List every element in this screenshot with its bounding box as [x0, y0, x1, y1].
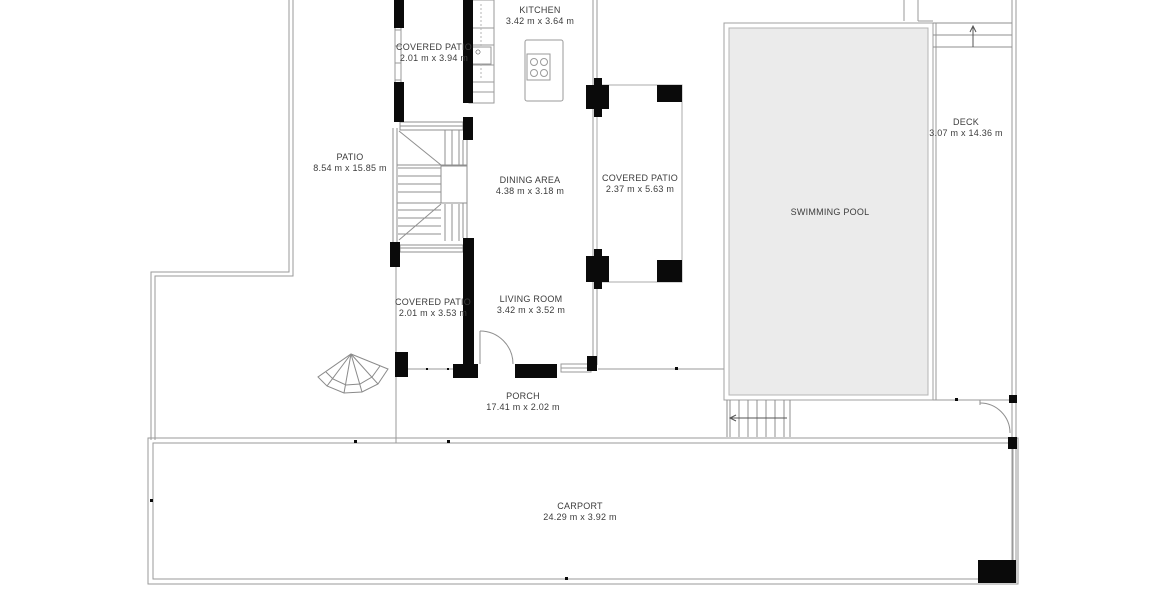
room-dims: 2.01 m x 3.94 m [396, 53, 472, 64]
room-label-deck: DECK 3.07 m x 14.36 m [929, 117, 1003, 139]
room-label-porch: PORCH 17.41 m x 2.02 m [486, 391, 560, 413]
room-label-covered-patio-top: COVERED PATIO 2.01 m x 3.94 m [396, 42, 472, 64]
room-name: COVERED PATIO [602, 173, 678, 184]
room-name: SWIMMING POOL [791, 207, 870, 218]
room-name: DECK [929, 117, 1003, 128]
patio-boundary [151, 0, 293, 440]
deck-steps-arrow [970, 26, 976, 47]
room-dims: 17.41 m x 2.02 m [486, 402, 560, 413]
staircase [393, 122, 467, 252]
room-label-swimming-pool: SWIMMING POOL [791, 207, 870, 218]
room-dims: 2.37 m x 5.63 m [602, 184, 678, 195]
room-label-patio: PATIO 8.54 m x 15.85 m [313, 152, 387, 174]
room-label-living-room: LIVING ROOM 3.42 m x 3.52 m [497, 294, 565, 316]
room-name: COVERED PATIO [395, 297, 471, 308]
kitchen-sink [472, 47, 491, 64]
room-name: KITCHEN [506, 5, 574, 16]
room-label-kitchen: KITCHEN 3.42 m x 3.64 m [506, 5, 574, 27]
room-name: PORCH [486, 391, 560, 402]
room-label-carport: CARPORT 24.29 m x 3.92 m [543, 501, 617, 523]
fan-stair [318, 354, 388, 393]
room-dims: 8.54 m x 15.85 m [313, 163, 387, 174]
room-name: CARPORT [543, 501, 617, 512]
room-dims: 3.42 m x 3.52 m [497, 305, 565, 316]
room-name: LIVING ROOM [497, 294, 565, 305]
deck-side-door [980, 400, 1010, 433]
living-room-window [561, 364, 591, 372]
room-dims: 3.42 m x 3.64 m [506, 16, 574, 27]
room-dims: 24.29 m x 3.92 m [543, 512, 617, 523]
floor-plan-canvas: KITCHEN 3.42 m x 3.64 m COVERED PATIO 2.… [0, 0, 1165, 590]
room-label-covered-patio-right: COVERED PATIO 2.37 m x 5.63 m [602, 173, 678, 195]
deck-outline [933, 0, 1016, 583]
room-label-dining-area: DINING AREA 4.38 m x 3.18 m [496, 175, 564, 197]
pool-top-corridor [904, 0, 933, 21]
room-name: PATIO [313, 152, 387, 163]
living-room-door [480, 331, 513, 364]
room-label-covered-patio-bottom: COVERED PATIO 2.01 m x 3.53 m [395, 297, 471, 319]
room-dims: 2.01 m x 3.53 m [395, 308, 471, 319]
stove-icon [527, 54, 550, 80]
room-name: DINING AREA [496, 175, 564, 186]
kitchen-island [525, 40, 563, 101]
room-name: COVERED PATIO [396, 42, 472, 53]
room-dims: 3.07 m x 14.36 m [929, 128, 1003, 139]
room-dims: 4.38 m x 3.18 m [496, 186, 564, 197]
